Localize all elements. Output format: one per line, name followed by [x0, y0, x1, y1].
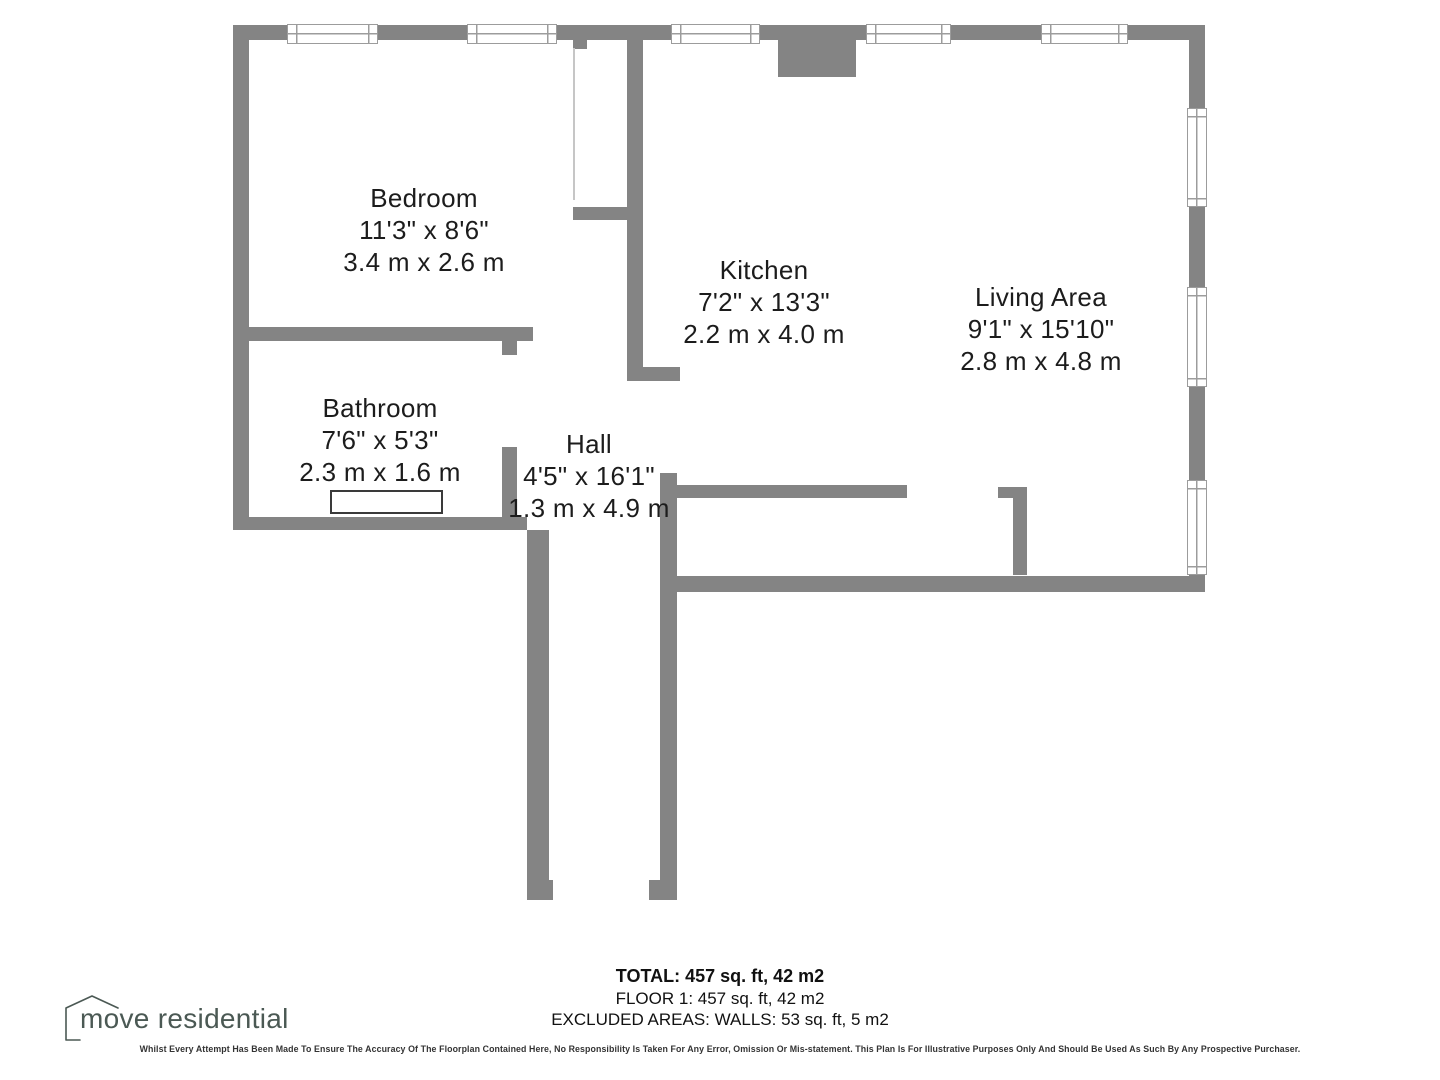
room-label-kitchen: Kitchen 7'2" x 13'3" 2.2 m x 4.0 m: [604, 254, 924, 350]
room-imperial: 11'3" x 8'6": [264, 214, 584, 246]
room-name: Living Area: [881, 281, 1201, 313]
room-imperial: 4'5" x 16'1": [429, 460, 749, 492]
room-name: Bathroom: [220, 392, 540, 424]
wall-corridor-left: [527, 530, 549, 900]
room-metric: 3.4 m x 2.6 m: [264, 246, 584, 278]
disclaimer-text: Whilst Every Attempt Has Been Made To En…: [0, 1044, 1440, 1054]
window-right-3: [1187, 480, 1207, 575]
wall-recess-cap: [998, 487, 1013, 498]
agency-logo-text: move residential: [80, 996, 289, 1042]
room-label-hall: Hall 4'5" x 16'1" 1.3 m x 4.9 m: [429, 428, 749, 524]
room-imperial: 9'1" x 15'10": [881, 313, 1201, 345]
agency-logo: move residential: [64, 994, 289, 1042]
window-top-1: [287, 24, 378, 44]
room-name: Bedroom: [264, 182, 584, 214]
room-label-bedroom: Bedroom 11'3" x 8'6" 3.4 m x 2.6 m: [264, 182, 584, 278]
wall-divider-top-stub: [573, 40, 587, 49]
wall-corridor-right: [660, 473, 677, 900]
wall-kitchen-door-cap: [627, 367, 680, 381]
wall-living-bottom: [663, 576, 1205, 592]
room-name: Kitchen: [604, 254, 924, 286]
room-imperial: 7'2" x 13'3": [604, 286, 924, 318]
floorplan-page: Bedroom 11'3" x 8'6" 3.4 m x 2.6 m Kitch…: [0, 0, 1440, 1080]
window-top-3: [671, 24, 760, 44]
window-top-4: [866, 24, 951, 44]
window-right-1: [1187, 108, 1207, 207]
room-metric: 2.2 m x 4.0 m: [604, 318, 924, 350]
wall-recess-right: [1013, 487, 1027, 575]
room-label-living-area: Living Area 9'1" x 15'10" 2.8 m x 4.8 m: [881, 281, 1201, 377]
window-top-2: [467, 24, 557, 44]
wall-corridor-right-foot: [649, 880, 677, 900]
wall-hall-jamb: [502, 340, 517, 355]
bathtub: [330, 490, 443, 514]
wall-corridor-left-foot: [527, 880, 553, 900]
room-metric: 1.3 m x 4.9 m: [429, 492, 749, 524]
window-top-5: [1041, 24, 1128, 44]
total-area-text: TOTAL: 457 sq. ft, 42 m2: [0, 966, 1440, 987]
room-name: Hall: [429, 428, 749, 460]
wall-bedroom-bottom: [249, 327, 533, 341]
chimney-breast: [778, 40, 856, 77]
partition-line: [573, 48, 575, 200]
room-metric: 2.8 m x 4.8 m: [881, 345, 1201, 377]
